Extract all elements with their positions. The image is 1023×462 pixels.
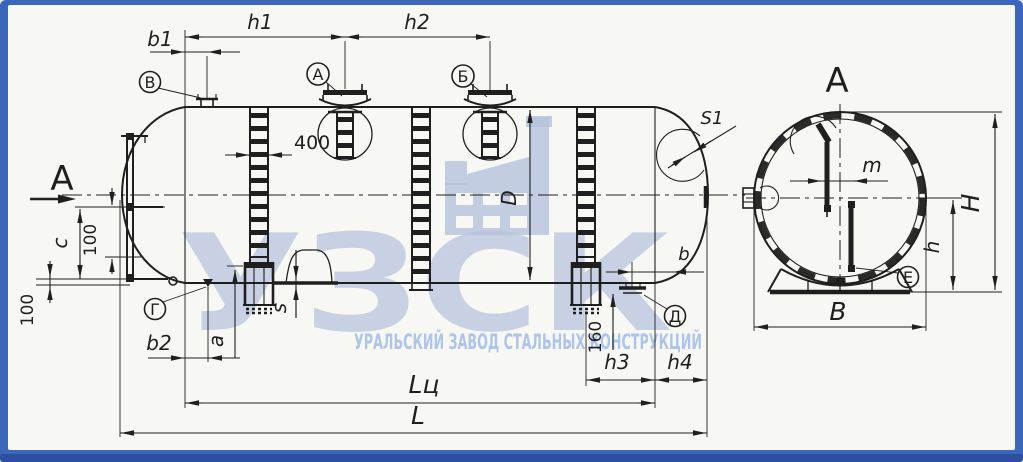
dim-c-label: c: [48, 238, 72, 249]
tank-drawing-svg: УЗСК УРАЛЬСКИЙ ЗАВОД СТАЛЬНЫХ КОНСТРУКЦИ…: [0, 0, 1023, 462]
dim-h4-label: h4: [667, 350, 692, 374]
dim-m-label: m: [862, 153, 881, 177]
badge-v-label: В: [145, 73, 156, 92]
dim-b2-label: b2: [146, 331, 171, 355]
badge-g-label: Г: [150, 300, 160, 319]
drawing-sheet: УЗСК УРАЛЬСКИЙ ЗАВОД СТАЛЬНЫХ КОНСТРУКЦИ…: [0, 0, 1023, 462]
dim-h2-label: h2: [404, 10, 429, 34]
dim-height-label: H: [956, 193, 985, 212]
dim-b-label: b: [678, 244, 689, 265]
dim-lc-label: Lц: [409, 370, 440, 399]
dim-h1-label: h1: [247, 10, 272, 34]
dim-s1-label: S1: [701, 108, 724, 129]
dim-160-label: 160: [586, 321, 606, 353]
section-view-title: А: [825, 61, 848, 101]
watermark-subtitle: УРАЛЬСКИЙ ЗАВОД СТАЛЬНЫХ КОНСТРУКЦИЙ: [354, 329, 702, 354]
dim-s-label: s: [267, 303, 291, 313]
badge-d-label: Д: [669, 307, 682, 326]
badge-b-label: Б: [458, 67, 469, 86]
cut-arrow-label: А: [50, 159, 73, 199]
dim-width-b-label: В: [829, 297, 846, 326]
badge-a-label: А: [313, 65, 324, 84]
frame-border-bottom: [0, 454, 1023, 462]
dim-400-label: 400: [294, 132, 330, 154]
dim-100-bottom-label: 100: [18, 294, 38, 326]
dim-b1-label: b1: [147, 27, 172, 51]
dim-100-side-label: 100: [81, 224, 101, 256]
dim-a-label: a: [204, 335, 228, 347]
dim-l-label: L: [411, 401, 425, 430]
dim-h-label: h: [920, 241, 944, 254]
dim-h3-label: h3: [604, 350, 629, 374]
dim-d-label: D: [497, 190, 521, 205]
